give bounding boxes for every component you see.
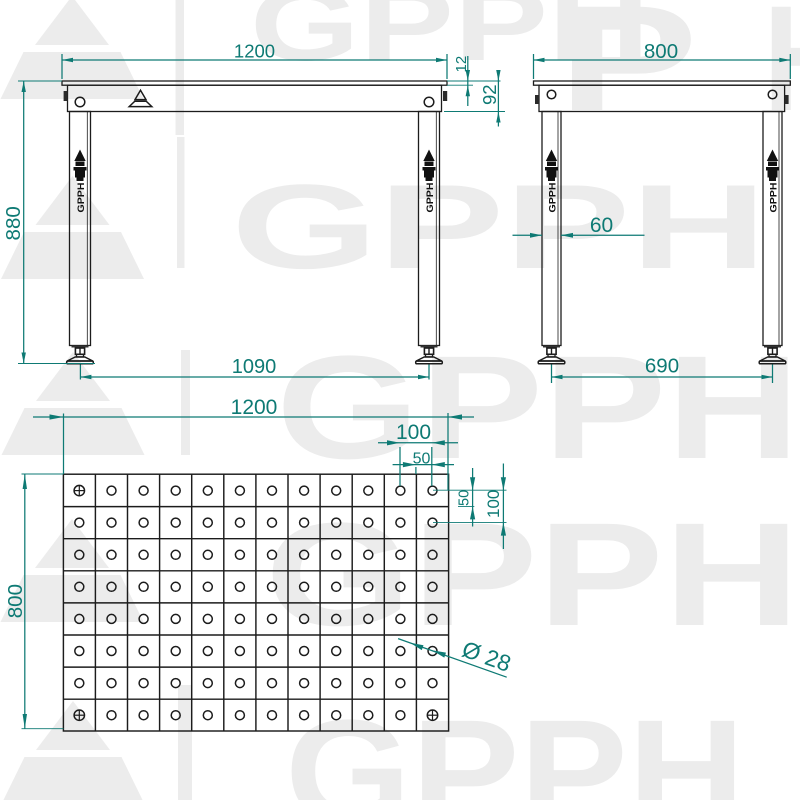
svg-text:GPPH: GPPH [285,690,745,800]
svg-text:60: 60 [590,214,613,237]
svg-text:50: 50 [456,490,472,506]
svg-text:92: 92 [479,84,500,105]
svg-text:GPPH: GPPH [231,160,767,294]
svg-text:1200: 1200 [234,40,275,61]
svg-text:GPPH: GPPH [276,326,800,490]
svg-text:880: 880 [2,206,25,240]
svg-text:100: 100 [396,421,431,444]
svg-text:GPPH: GPPH [425,182,436,212]
svg-text:12: 12 [453,56,470,73]
svg-text:GPPH: GPPH [768,182,779,212]
svg-text:P: P [558,0,698,142]
svg-text:50: 50 [413,451,431,468]
svg-text:800: 800 [4,584,27,618]
svg-text:GPPH: GPPH [547,182,558,212]
svg-text:GPPH: GPPH [76,182,87,212]
svg-text:690: 690 [645,355,679,378]
svg-text:GPPH: GPPH [265,493,800,657]
svg-text:1090: 1090 [232,356,277,378]
svg-text:800: 800 [644,40,678,63]
svg-text:1200: 1200 [231,396,278,419]
svg-text:100: 100 [484,490,503,518]
